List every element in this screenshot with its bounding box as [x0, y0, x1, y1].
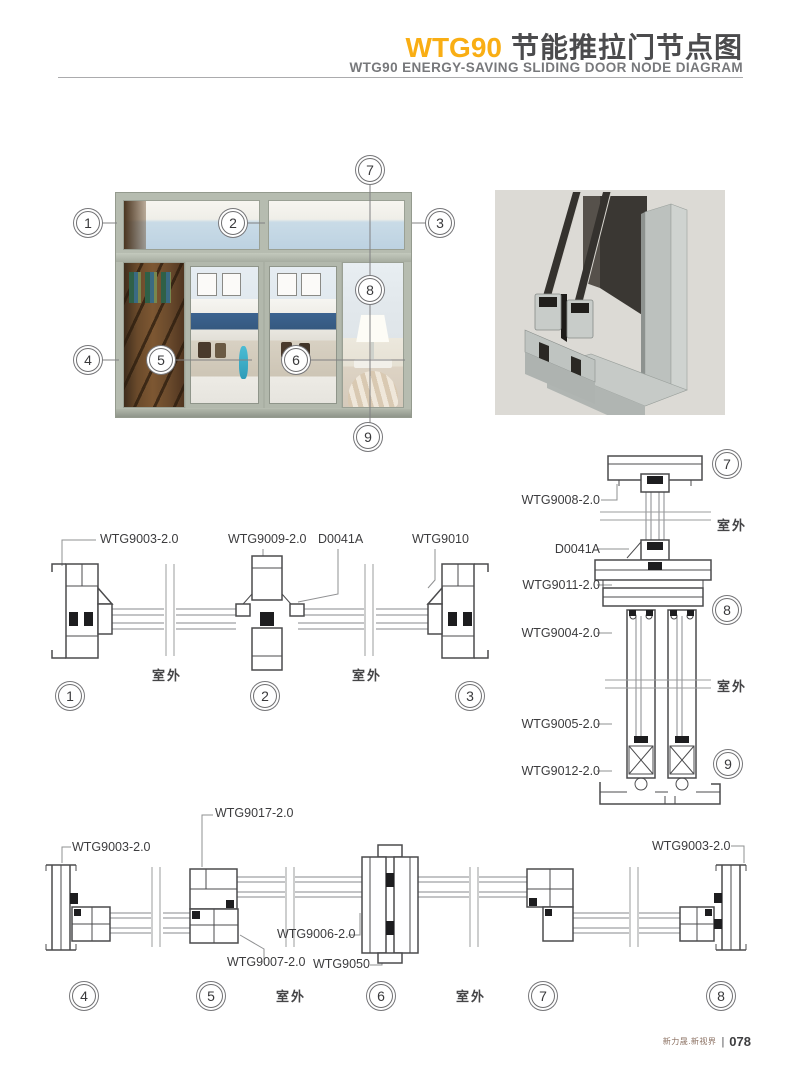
callout-4: 4 [76, 348, 100, 372]
section-drawing-nodes-1-2-3 [40, 528, 500, 678]
label-d0041a-right: D0041A [516, 542, 600, 556]
label-d0041a-top: D0041A [318, 532, 363, 546]
outdoor-label: 室外 [717, 515, 747, 534]
node-callout-8b: 8 [709, 984, 733, 1008]
callout-5: 5 [149, 348, 173, 372]
footer-page-number: 078 [729, 1034, 751, 1049]
header-divider-line [58, 77, 743, 78]
page-subtitle-english: WTG90 ENERGY-SAVING SLIDING DOOR NODE DI… [349, 60, 743, 75]
outdoor-label: 室外 [456, 986, 486, 1005]
overview-leader-lines [60, 150, 480, 450]
node-callout-8: 8 [715, 598, 739, 622]
node-callout-7: 7 [715, 452, 739, 476]
label-wtg9007: WTG9007-2.0 [227, 955, 306, 969]
callout-6: 6 [284, 348, 308, 372]
callout-7: 7 [358, 158, 382, 182]
label-wtg9009: WTG9009-2.0 [228, 532, 307, 546]
outdoor-label: 室外 [352, 665, 382, 684]
callout-1: 1 [76, 211, 100, 235]
node-callout-5: 5 [199, 984, 223, 1008]
label-wtg9005: WTG9005-2.0 [516, 717, 600, 731]
label-wtg9011: WTG9011-2.0 [516, 578, 600, 592]
label-wtg9017: WTG9017-2.0 [215, 806, 294, 820]
callout-8: 8 [358, 278, 382, 302]
profile-3d-render [495, 190, 725, 415]
section-drawing-nodes-4-to-8 [40, 805, 760, 970]
node-callout-2: 2 [253, 684, 277, 708]
label-wtg9003-top: WTG9003-2.0 [100, 532, 179, 546]
node-callout-6: 6 [369, 984, 393, 1008]
label-wtg9003-bottom-right: WTG9003-2.0 [652, 839, 731, 853]
footer-brand: 新力晟.新视界 [663, 1036, 717, 1047]
label-wtg9004: WTG9004-2.0 [516, 626, 600, 640]
page-footer: 新力晟.新视界 | 078 [663, 1034, 751, 1049]
callout-9: 9 [356, 425, 380, 449]
outdoor-label: 室外 [717, 676, 747, 695]
node-callout-1: 1 [58, 684, 82, 708]
node-callout-7b: 7 [531, 984, 555, 1008]
footer-divider: | [721, 1036, 724, 1048]
callout-2: 2 [221, 211, 245, 235]
label-wtg9008: WTG9008-2.0 [516, 493, 600, 507]
node-callout-9: 9 [716, 752, 740, 776]
title-chinese: 节能推拉门节点图 [511, 32, 743, 63]
catalog-page: WTG90节能推拉门节点图 WTG90 ENERGY-SAVING SLIDIN… [0, 0, 800, 1085]
label-wtg9006: WTG9006-2.0 [277, 927, 356, 941]
outdoor-label: 室外 [152, 665, 182, 684]
node-callout-4: 4 [72, 984, 96, 1008]
label-wtg9010: WTG9010 [412, 532, 469, 546]
node-callout-3: 3 [458, 684, 482, 708]
profile-3d-render-image [495, 190, 725, 415]
callout-3: 3 [428, 211, 452, 235]
title-model-code: WTG90 [406, 32, 502, 63]
label-wtg9050: WTG9050 [313, 957, 370, 971]
label-wtg9012: WTG9012-2.0 [516, 764, 600, 778]
outdoor-label: 室外 [276, 986, 306, 1005]
label-wtg9003-bottom-left: WTG9003-2.0 [72, 840, 151, 854]
